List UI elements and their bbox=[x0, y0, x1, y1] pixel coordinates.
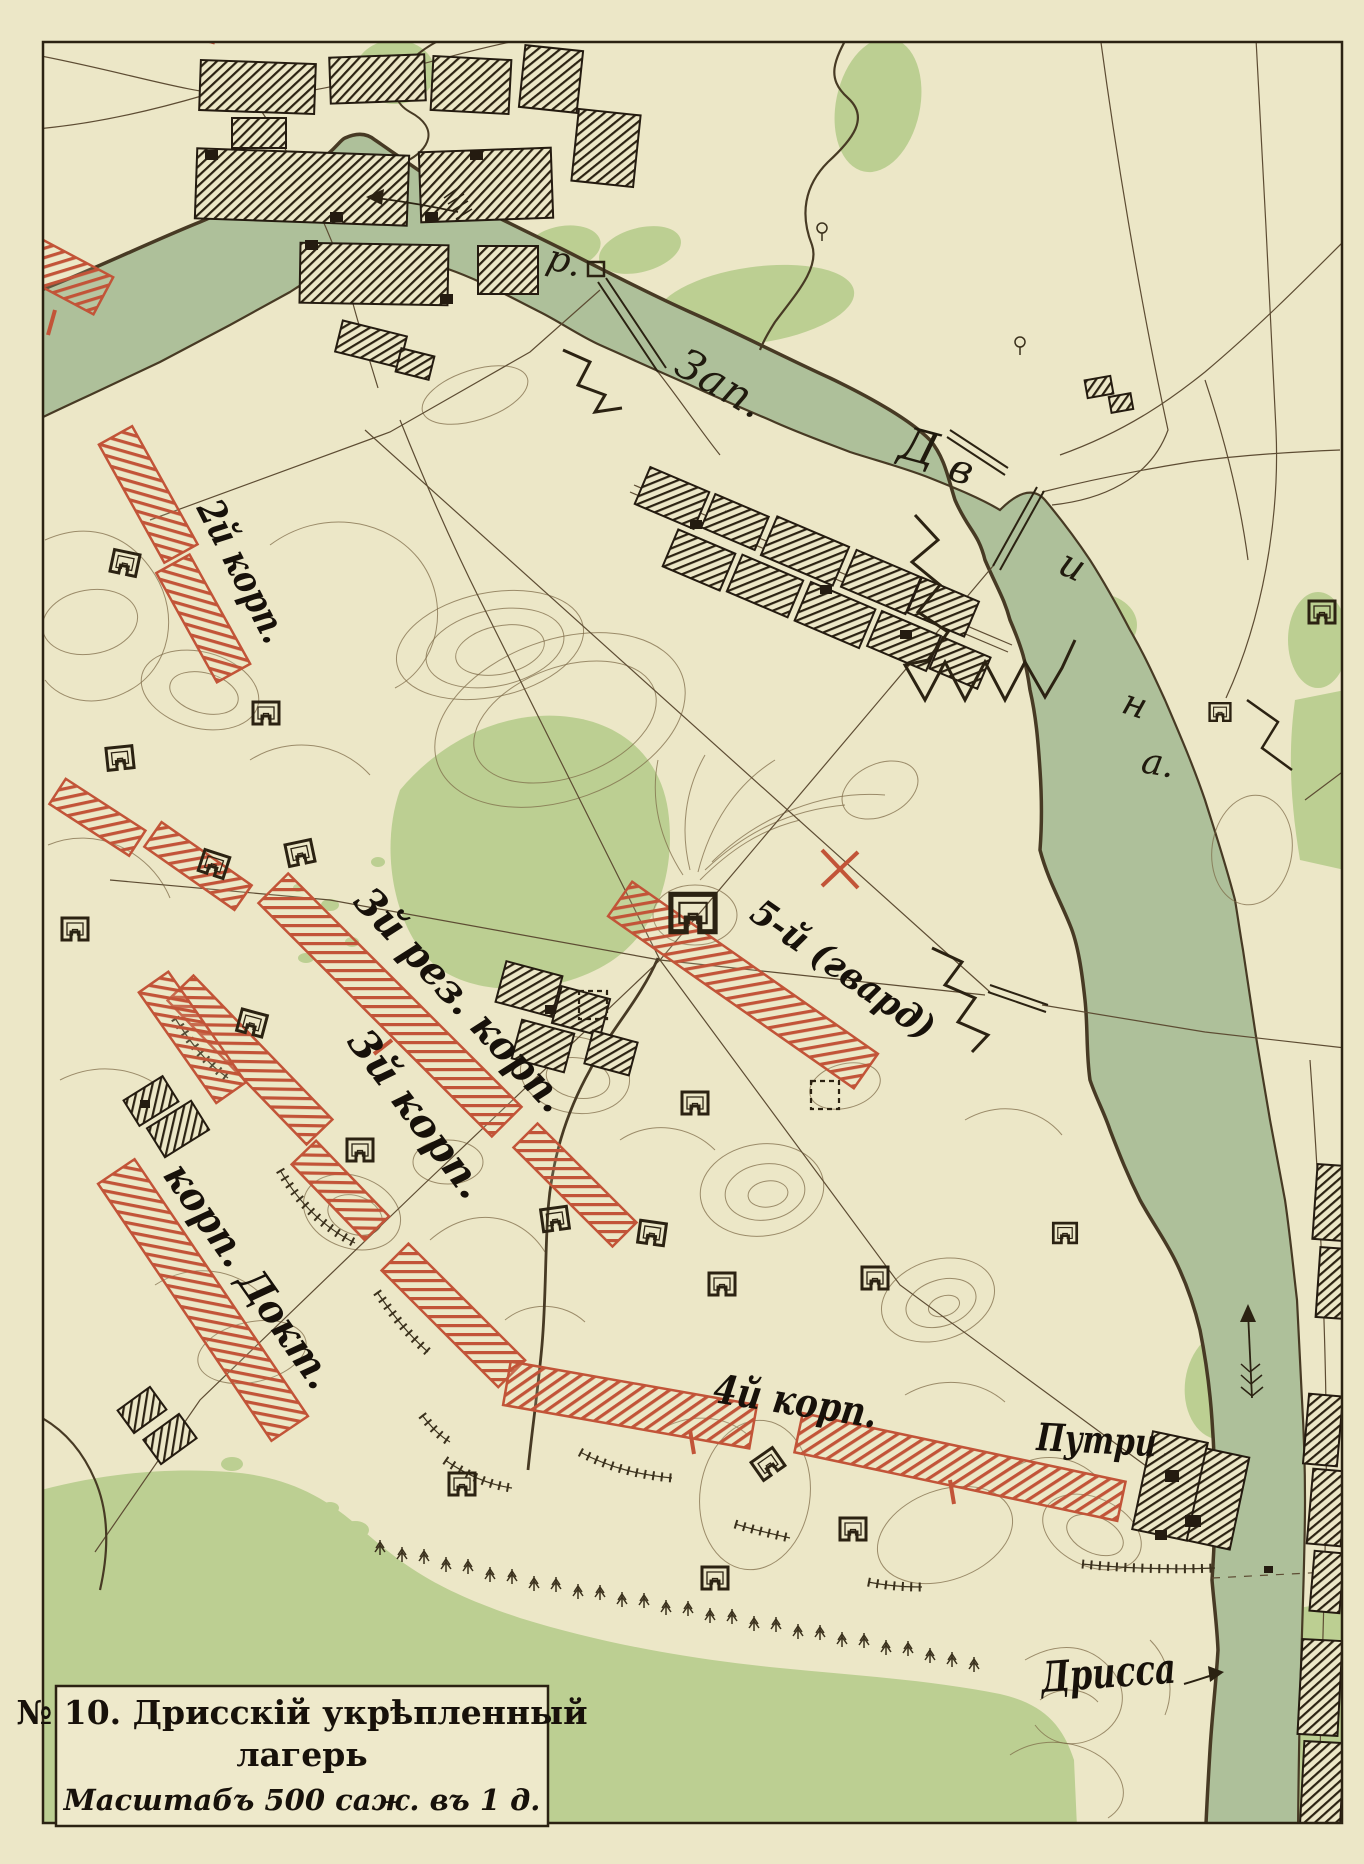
ferry-flag bbox=[1264, 1566, 1273, 1573]
place-label-putri: Путри bbox=[1035, 1414, 1158, 1465]
title-box: № 10. Дрисскій укрѣпленный лагерь Масшта… bbox=[16, 1686, 587, 1826]
historical-map-drissa-camp: р. Зап. Д в и н а. 2й корп. 3й рез. корп… bbox=[0, 0, 1364, 1864]
map-title-line2: лагерь bbox=[236, 1735, 367, 1774]
map-canvas: р. Зап. Д в и н а. 2й корп. 3й рез. корп… bbox=[0, 0, 1364, 1864]
place-label-drissa-text: Дрисса bbox=[1038, 1644, 1178, 1702]
map-title-line1: № 10. Дрисскій укрѣпленный bbox=[16, 1693, 587, 1732]
map-scale-line: Масштабъ 500 саж. въ 1 д. bbox=[63, 1783, 541, 1817]
river-label-letter: а. bbox=[1138, 740, 1178, 786]
